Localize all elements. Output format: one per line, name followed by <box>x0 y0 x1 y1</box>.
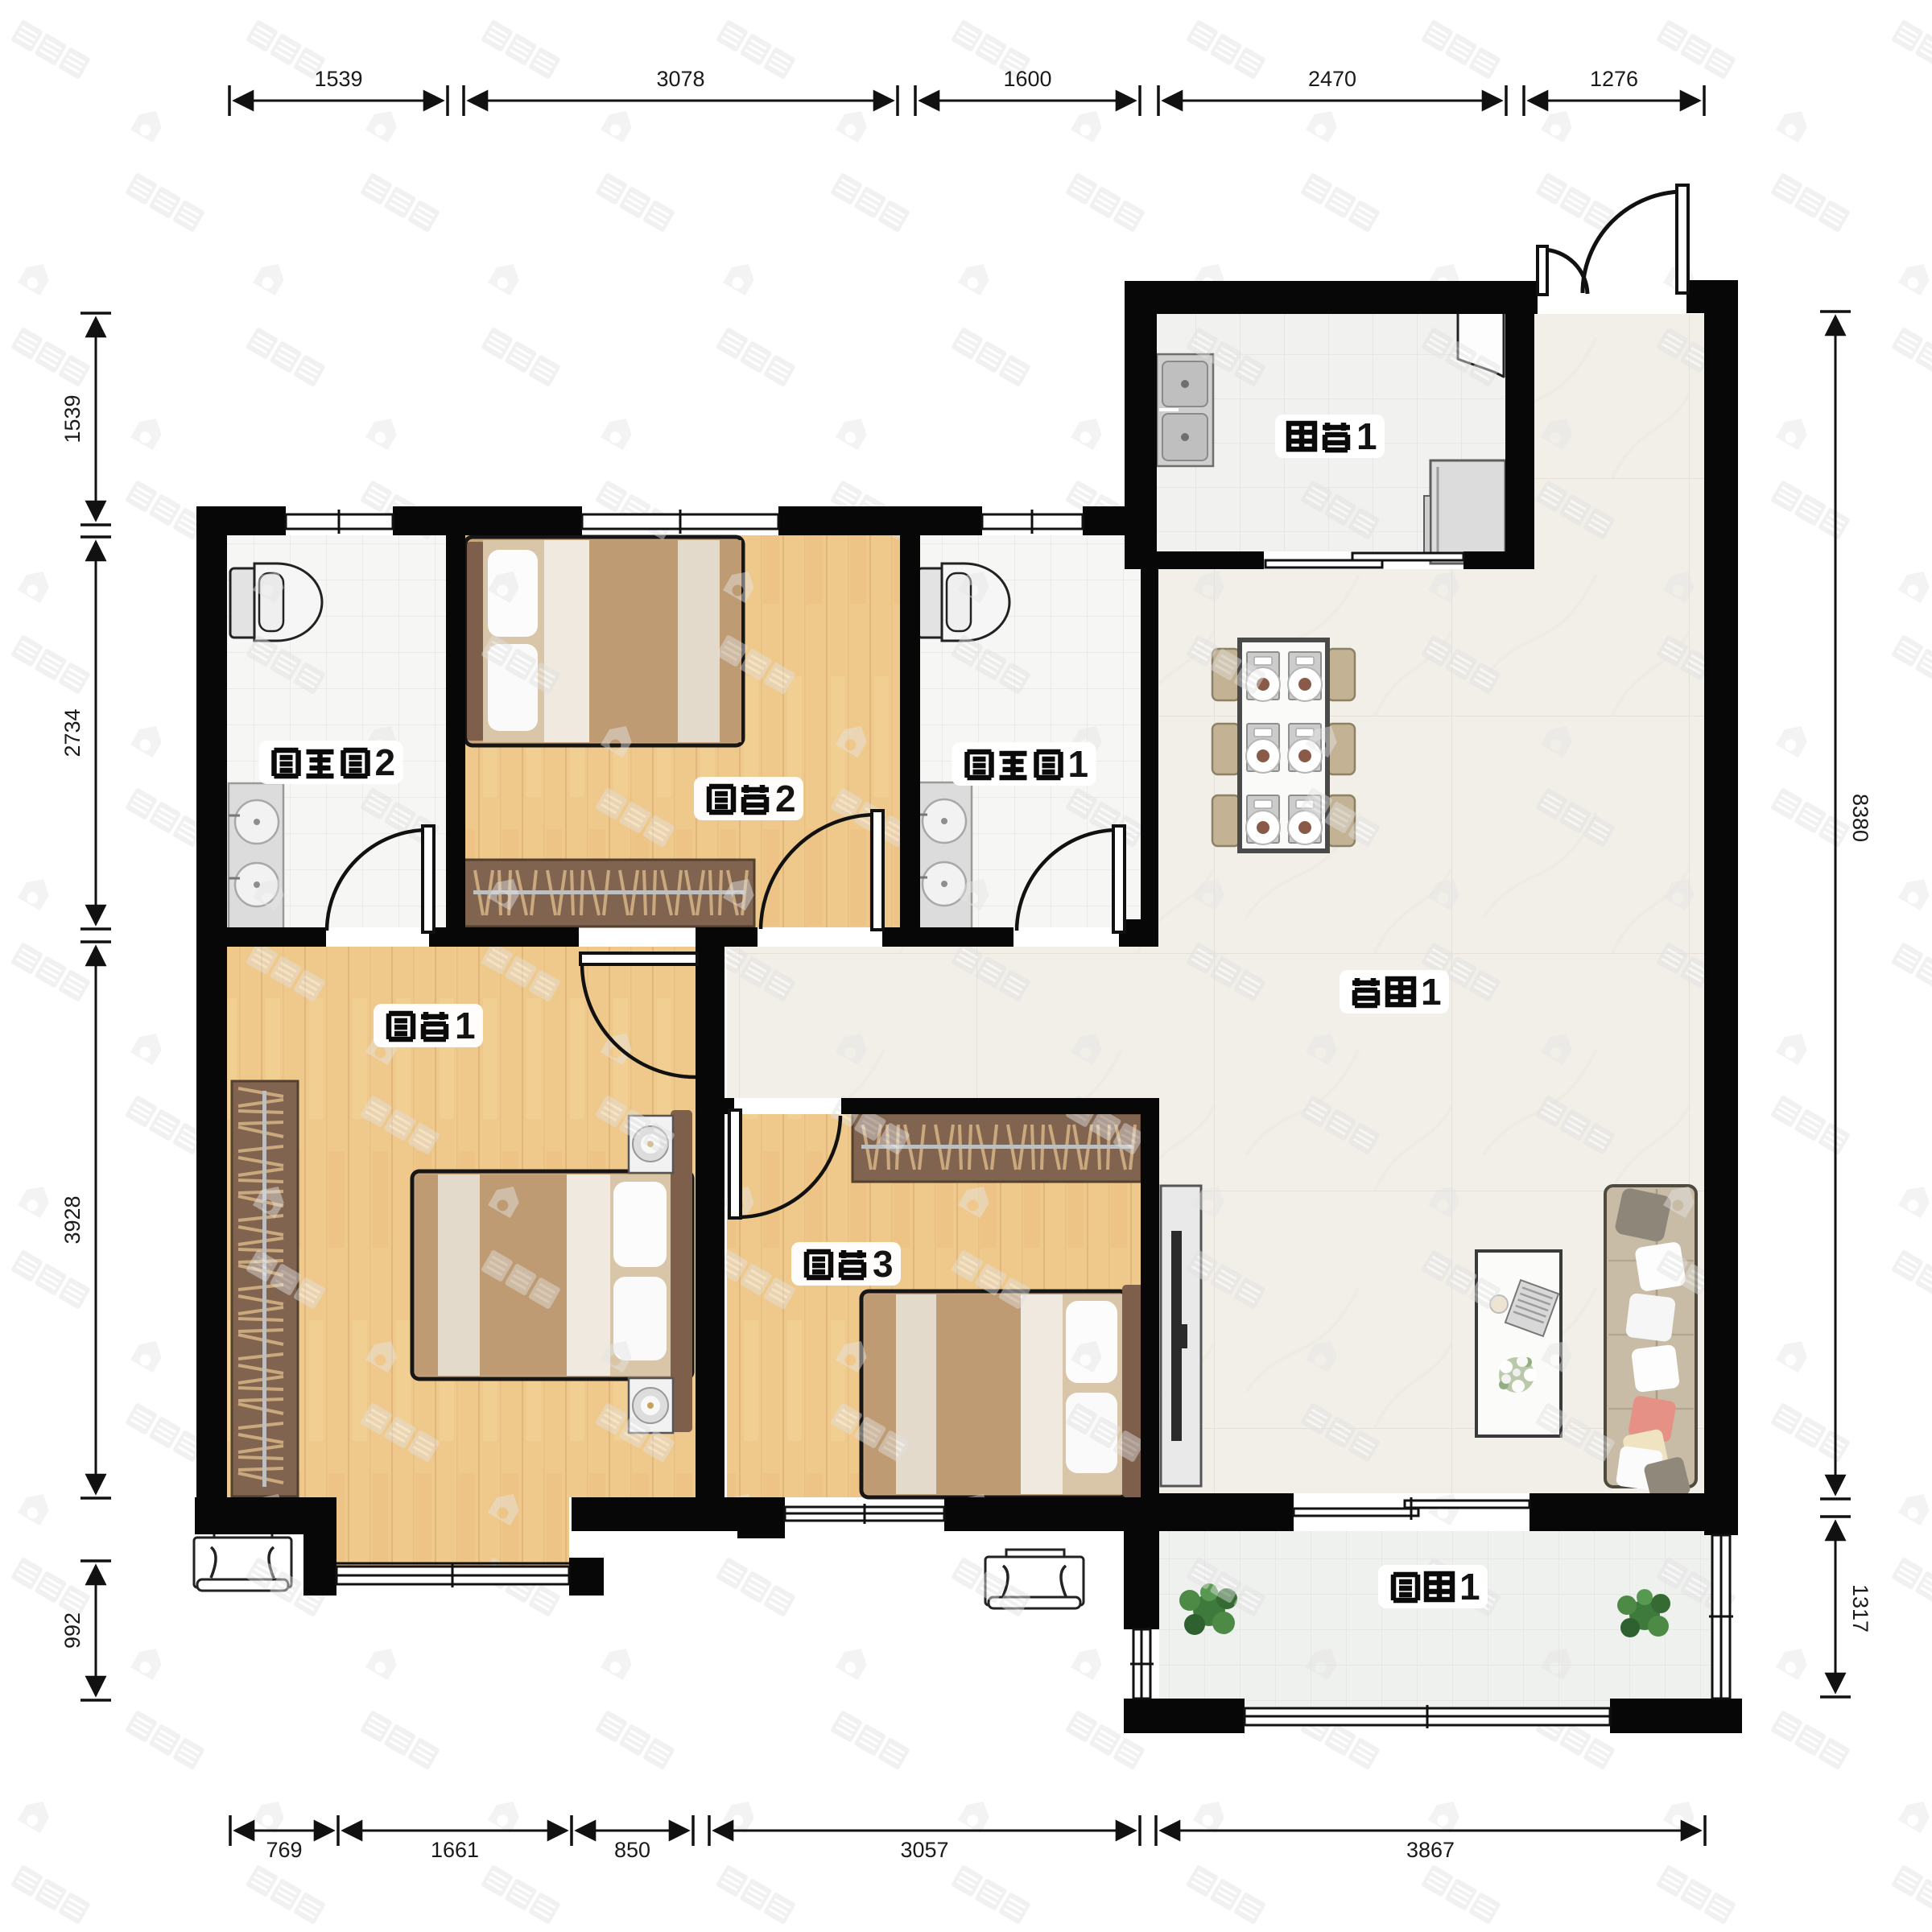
svg-text:3867: 3867 <box>1406 1838 1455 1862</box>
svg-text:2: 2 <box>375 741 396 783</box>
svg-text:992: 992 <box>60 1612 85 1649</box>
svg-text:3: 3 <box>873 1243 894 1285</box>
svg-text:3928: 3928 <box>60 1195 85 1244</box>
svg-text:769: 769 <box>266 1838 302 1862</box>
svg-text:1661: 1661 <box>431 1838 479 1862</box>
svg-text:8380: 8380 <box>1848 794 1872 842</box>
svg-text:2: 2 <box>775 778 796 819</box>
svg-text:2470: 2470 <box>1308 67 1356 91</box>
svg-text:1: 1 <box>1459 1566 1480 1608</box>
svg-text:1: 1 <box>1356 415 1377 457</box>
svg-text:3078: 3078 <box>656 67 704 91</box>
svg-text:1: 1 <box>1068 743 1089 785</box>
svg-text:1: 1 <box>1421 971 1442 1013</box>
svg-text:2734: 2734 <box>60 708 85 757</box>
svg-text:1317: 1317 <box>1848 1584 1872 1633</box>
svg-text:1276: 1276 <box>1590 67 1638 91</box>
svg-text:1600: 1600 <box>1003 67 1051 91</box>
svg-text:850: 850 <box>614 1838 650 1862</box>
svg-text:3057: 3057 <box>900 1838 948 1862</box>
svg-text:1: 1 <box>455 1005 476 1046</box>
svg-text:1539: 1539 <box>60 394 85 443</box>
svg-text:1539: 1539 <box>314 67 362 91</box>
